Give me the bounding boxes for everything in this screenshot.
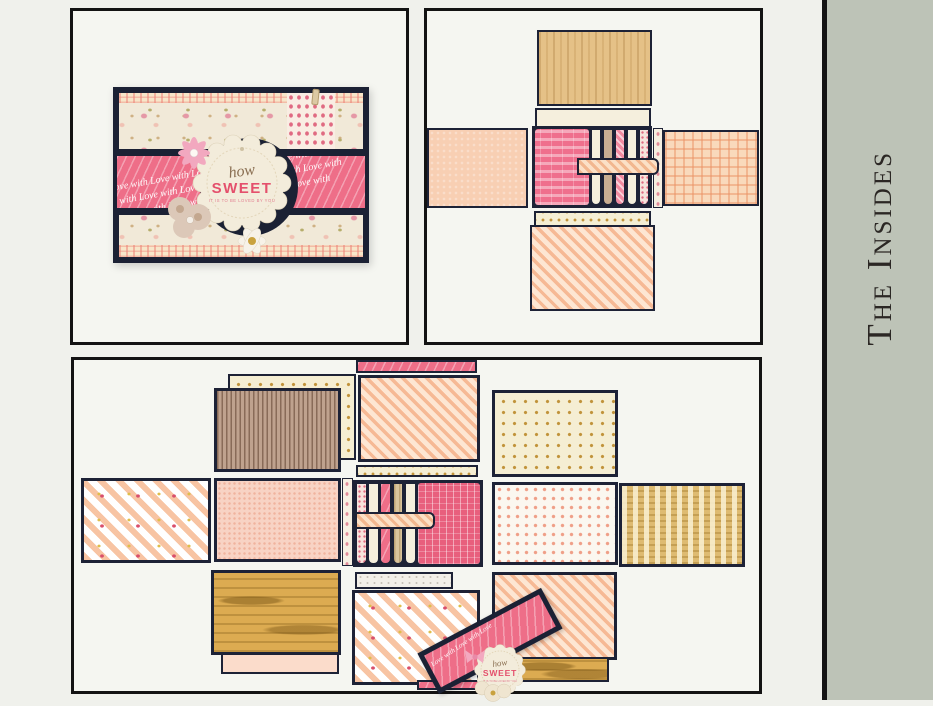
tag-main-word: SWEET (212, 180, 273, 197)
belly-band (577, 158, 659, 175)
tag-hole (240, 147, 244, 151)
photo-frame-open-box (424, 8, 763, 345)
panel-chevron-left (81, 478, 211, 563)
pink-bow (465, 650, 485, 663)
closed-box-photo: Love with Love with Love with Love with … (73, 11, 406, 342)
panel-peach-peek (221, 652, 339, 674)
panel-woven-tan (619, 483, 745, 567)
photo-frame-exploded-box: Love with Love with Love how SWEET IT (71, 357, 762, 694)
panel-wood-gold (211, 570, 341, 655)
panel-gold-dot-right (492, 390, 618, 477)
open-box-photo (427, 11, 760, 342)
lid-tag-subtext: IT IS TO BE LOVED BY YOU (483, 679, 517, 683)
exploded-box-photo: Love with Love with Love how SWEET IT (74, 360, 759, 691)
sweet-tag-and-flowers: how SWEET IT IS TO BE LOVED BY YOU (152, 121, 312, 261)
pink-daisy-flower (178, 137, 210, 169)
lid-sweet-tag: how SWEET IT IS TO BE LOVED BY YOU (462, 632, 536, 706)
panel-wood-top-flap (537, 30, 652, 106)
panel-gold-dot-strip (356, 465, 478, 477)
panel-speckle-strip (355, 572, 453, 589)
panel-stripe-top-center (358, 375, 480, 462)
photo-frame-closed-box: Love with Love with Love with Love with … (70, 8, 409, 345)
panel-white-pink-dot (492, 482, 618, 565)
panel-peach-dot (214, 478, 341, 562)
panel-peach-left-flap (427, 128, 528, 208)
panel-plaid-right-flap (663, 130, 759, 206)
panel-floral-spine (342, 478, 353, 566)
title-side-band: The Insides (822, 0, 933, 700)
panel-stripe-bottom-flap (530, 225, 655, 311)
page-title-wrap: The Insides (827, 150, 933, 346)
closed-box: Love with Love with Love with Love with … (113, 87, 369, 263)
floral-cover-paper: Love with Love with Love with Love with … (119, 93, 363, 257)
panel-cream-liner-strip (535, 108, 651, 128)
slide-canvas: Love with Love with Love with Love with … (0, 0, 933, 700)
page-title: The Insides (860, 150, 900, 346)
tag-subtext: IT IS TO BE LOVED BY YOU (209, 198, 276, 203)
panel-pinstripe (214, 388, 341, 472)
lid-tag-main-word: SWEET (483, 668, 517, 678)
belly-band (355, 512, 435, 529)
panel-love-strip-top (356, 360, 477, 373)
